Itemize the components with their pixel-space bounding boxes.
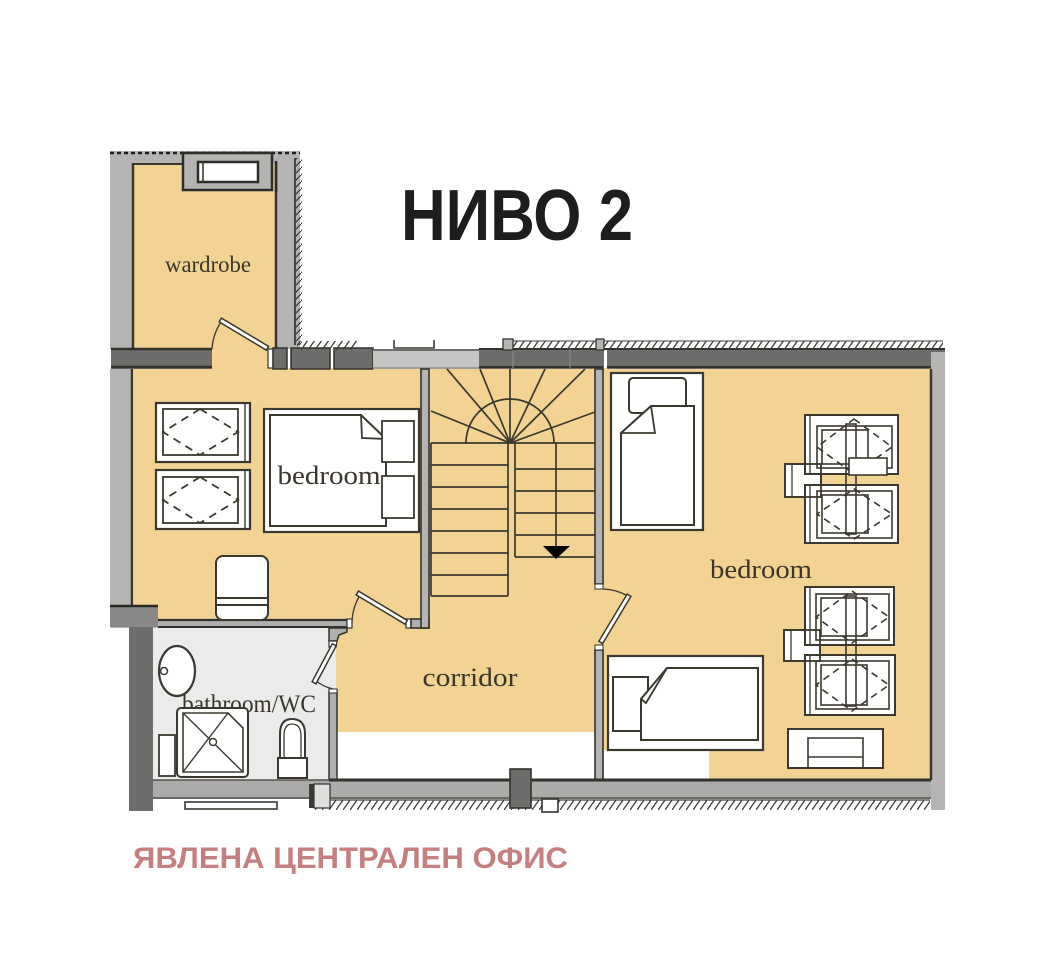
svg-text:bedroom: bedroom: [278, 461, 381, 490]
svg-text:НИВО 2: НИВО 2: [401, 176, 633, 256]
svg-text:bedroom: bedroom: [710, 555, 812, 584]
svg-text:wardrobe: wardrobe: [165, 252, 251, 277]
svg-text:corridor: corridor: [423, 663, 518, 692]
svg-text:ЯВЛЕНА ЦЕНТРАЛЕН ОФИС: ЯВЛЕНА ЦЕНТРАЛЕН ОФИС: [133, 842, 568, 875]
